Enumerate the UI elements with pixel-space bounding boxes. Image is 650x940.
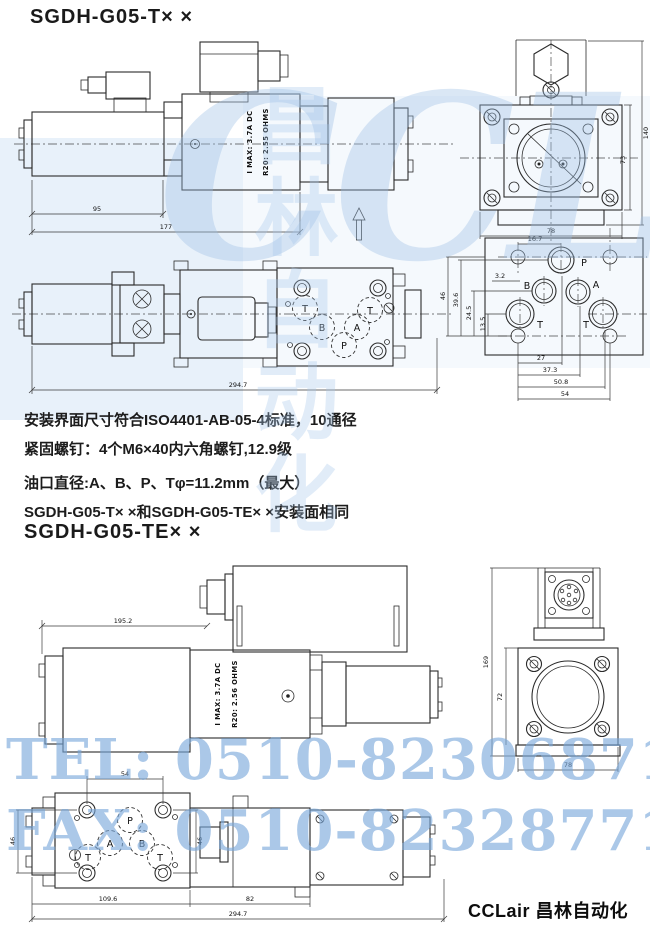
footer-brand: CCLair 昌林自动化 bbox=[468, 897, 628, 923]
t-side-valve-body bbox=[182, 94, 300, 190]
t-bottom-port-t1: T bbox=[301, 304, 308, 315]
face-dim-50-8: 50.8 bbox=[554, 378, 568, 386]
te-end-dim-width: 78 bbox=[564, 761, 572, 769]
face-port-a: A bbox=[593, 280, 600, 291]
drawing-t-side-view: I MAX: 3.7A DC R20: 2.55 OHMS 95 177 bbox=[12, 34, 457, 246]
t-side-dim-body: 177 bbox=[160, 223, 172, 231]
t-side-body-text-1: I MAX: 3.7A DC bbox=[246, 110, 254, 173]
te-side-body-text-1: I MAX: 3.7A DC bbox=[214, 662, 222, 725]
face-dim-46: 46 bbox=[439, 292, 447, 300]
face-dim-13-5: 13.5 bbox=[479, 317, 487, 331]
drawing-mounting-face: P B A T T 16.7 3.2 46 39.6 24.5 13.5 27 … bbox=[428, 226, 650, 404]
t-bottom-port-p: P bbox=[341, 341, 347, 352]
face-dim-3-2: 3.2 bbox=[495, 272, 505, 280]
te-bottom-right-section bbox=[310, 810, 435, 885]
face-port-t2: T bbox=[582, 320, 589, 331]
te-side-connector-stub bbox=[200, 574, 233, 620]
t-end-dim-body: 73 bbox=[619, 156, 627, 164]
te-bottom-dim-total: 294.7 bbox=[229, 910, 248, 918]
t-end-dim-total: 140 bbox=[642, 127, 650, 139]
drawing-te-end-view: 169 72 78 bbox=[478, 558, 650, 790]
te-bottom-dim-bolt-y-right: 46 bbox=[196, 837, 204, 845]
te-side-valve-body bbox=[190, 650, 310, 738]
note-line-3: 油口直径:A、B、P、Tφ=11.2mm（最大） bbox=[24, 469, 357, 498]
te-bottom-dim-bolt-y-left: 46 bbox=[9, 837, 17, 845]
face-dim-27: 27 bbox=[537, 354, 545, 362]
face-dim-16-7: 16.7 bbox=[528, 235, 542, 243]
te-side-body-text-2: R20: 2.56 OHMS bbox=[231, 660, 239, 728]
t-bottom-port-b: B bbox=[319, 323, 326, 334]
face-port-t1: T bbox=[536, 320, 543, 331]
te-bottom-dim-left-len: 109.6 bbox=[99, 895, 118, 903]
t-side-din-connector-small bbox=[81, 72, 150, 112]
te-bottom-port-b: B bbox=[139, 839, 146, 850]
t-bottom-dim-total: 294.7 bbox=[229, 381, 248, 389]
face-dim-54: 54 bbox=[561, 390, 569, 398]
t-end-dimension-lines bbox=[480, 41, 644, 239]
t-side-dim-coil: 95 bbox=[93, 205, 101, 213]
face-port-p: P bbox=[581, 258, 587, 269]
te-bottom-port-t2: T bbox=[156, 853, 163, 864]
te-bottom-dim-mid-len: 82 bbox=[246, 895, 254, 903]
face-dim-39-6: 39.6 bbox=[452, 293, 460, 307]
t-side-body-text-2: R20: 2.55 OHMS bbox=[262, 108, 270, 176]
note-line-2: 紧固螺钉：4个M6×40内六角螺钉,12.9级 bbox=[24, 435, 357, 464]
face-dim-37-3: 37.3 bbox=[543, 366, 557, 374]
face-ports bbox=[506, 243, 617, 331]
te-side-dimension-lines bbox=[39, 620, 210, 654]
face-dim-24-5: 24.5 bbox=[465, 306, 473, 320]
note-line-4: SGDH-G05-T× ×和SGDH-G05-TE× ×安装面相同 bbox=[24, 498, 357, 527]
section-title-t: SGDH-G05-T× × bbox=[30, 6, 193, 29]
te-bottom-dim-bolt-x: 54 bbox=[121, 770, 129, 778]
drawing-t-bottom-view: T B A P T 294.7 bbox=[10, 242, 455, 397]
face-plate bbox=[485, 238, 643, 355]
te-bottom-port-a: A bbox=[107, 839, 114, 850]
te-side-right-tube bbox=[310, 655, 442, 734]
te-side-coil bbox=[39, 648, 190, 752]
te-bottom-valve-body bbox=[190, 796, 310, 897]
flow-direction-arrow bbox=[353, 208, 365, 240]
face-port-b: B bbox=[524, 281, 531, 292]
t-bottom-port-a: A bbox=[354, 323, 361, 334]
te-end-dim-body: 72 bbox=[496, 693, 504, 701]
te-side-dim-top: 195.2 bbox=[114, 617, 133, 625]
note-line-1: 安装界面尺寸符合ISO4401-AB-05-4标准，10通径 bbox=[24, 406, 357, 435]
te-end-connector-plate bbox=[545, 572, 593, 618]
te-bottom-dimension-lines bbox=[16, 776, 447, 922]
datasheet-page: { "page": { "title_t": "SGDH-G05-T× ×", … bbox=[0, 0, 650, 940]
te-end-body bbox=[516, 648, 620, 756]
t-side-solenoid-coil bbox=[19, 102, 182, 176]
te-side-amplifier-box bbox=[233, 566, 407, 652]
drawing-t-end-view: 140 73 78 bbox=[452, 38, 650, 248]
te-bottom-port-t1: T bbox=[84, 853, 91, 864]
t-end-centerlines bbox=[460, 40, 638, 244]
t-side-din-connector-large bbox=[200, 42, 288, 102]
te-end-dim-total: 169 bbox=[482, 656, 490, 668]
drawing-te-side-view: I MAX: 3.7A DC R20: 2.56 OHMS 195.2 bbox=[15, 556, 465, 771]
te-bottom-port-p: P bbox=[127, 816, 133, 827]
notes-block: 安装界面尺寸符合ISO4401-AB-05-4标准，10通径 紧固螺钉：4个M6… bbox=[24, 406, 357, 527]
t-bottom-port-t2: T bbox=[366, 306, 373, 317]
face-corner-holes bbox=[511, 250, 617, 343]
